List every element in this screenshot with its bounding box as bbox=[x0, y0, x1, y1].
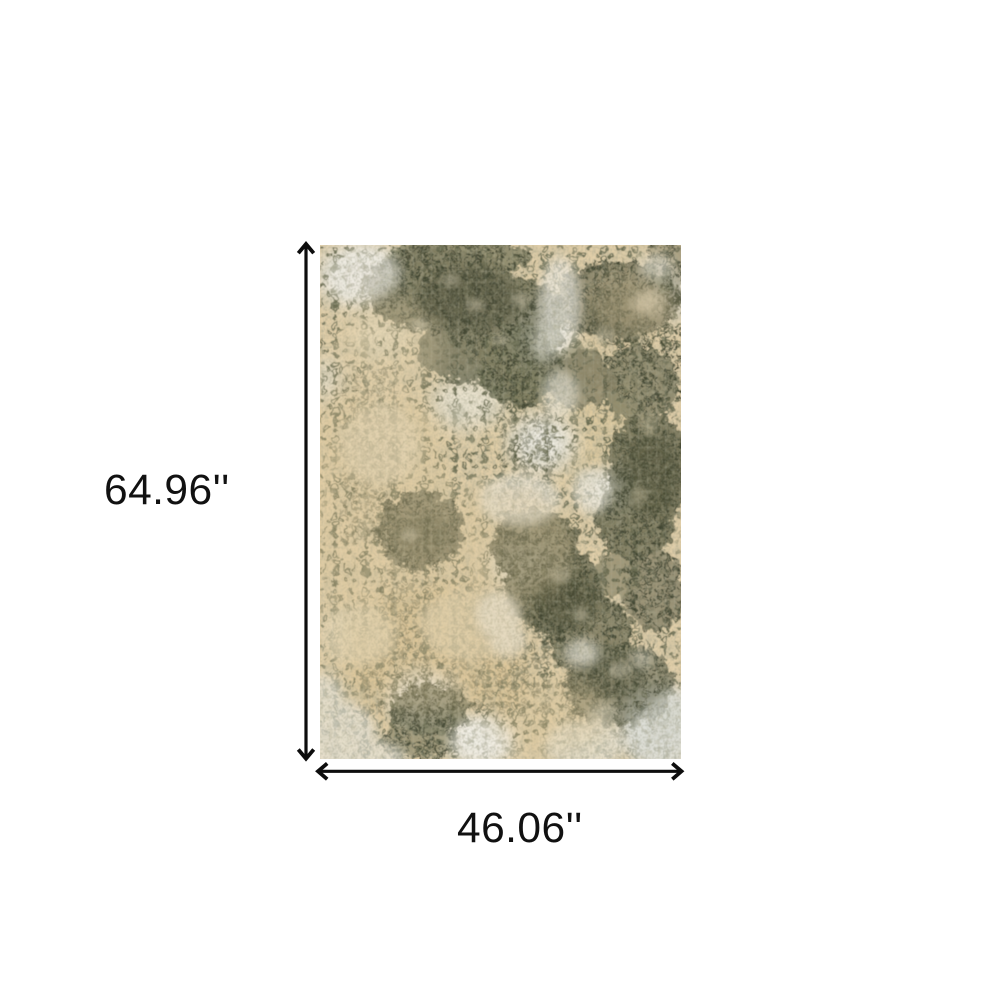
svg-text:64.96'': 64.96'' bbox=[104, 467, 230, 514]
svg-text:46.06'': 46.06'' bbox=[457, 805, 583, 852]
